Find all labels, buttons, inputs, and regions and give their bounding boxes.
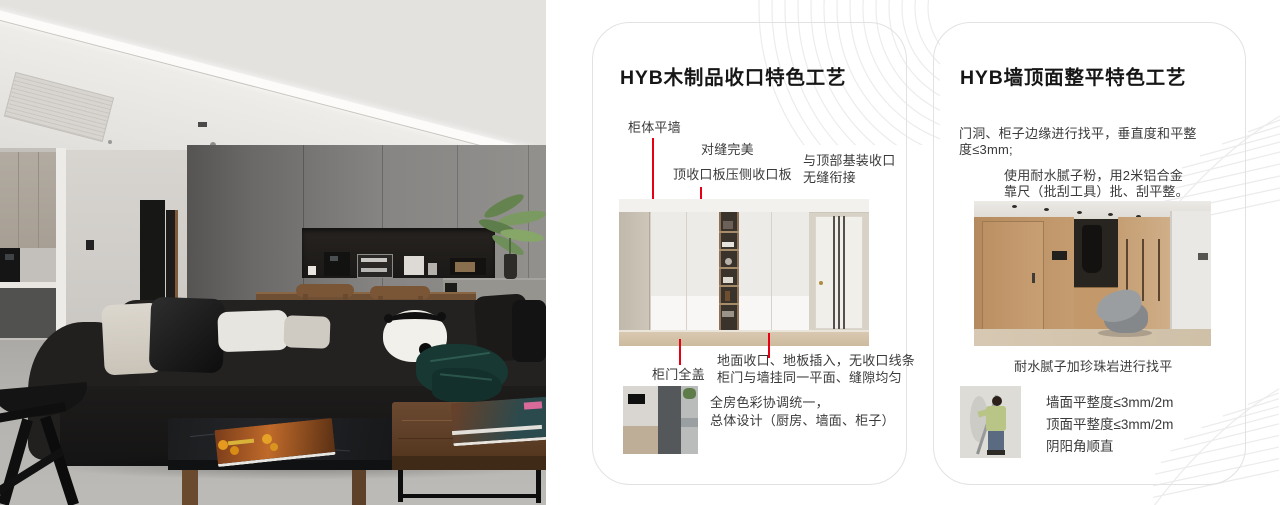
rack-cups [361,258,387,262]
walnut-table-stretcher [398,494,541,498]
wall-switch [1052,251,1067,260]
render-floor [619,330,869,346]
entry-hall-image [974,201,1211,346]
page: HYB木制品收口特色工艺 柜体平墙 对缝完美 顶收口板压侧收口板 与顶部基装收口… [0,0,1280,505]
walnut-table-leg [536,470,541,503]
orange-fruit [270,443,278,451]
shelf-item [723,277,733,283]
kitchen-cabinet-seam [38,152,39,248]
note-color-harmony: 全房色彩协调统一， [710,395,829,411]
niche-grinder [428,263,437,275]
dark-pillow [512,300,546,362]
coffee-machine-display [330,256,338,261]
thumb-gray-cabinet [658,386,681,454]
rack-cups [361,268,387,272]
render-left-wall [619,212,650,346]
hall-spotlight [1077,211,1082,214]
shelf-item [722,311,734,317]
render-ceiling [619,199,869,213]
interior-thumbnail [623,386,698,454]
putty-paragraph-line1: 使用耐水腻子粉，用2米铝合金 [1004,168,1183,184]
wardrobe-render-image [619,199,869,346]
shelf-item [725,291,730,301]
walnut-table-edge [392,456,546,470]
thumb-floor [623,426,658,454]
spec-corner-straightness: 阴阳角顺直 [1046,435,1114,455]
thumb-tv [628,394,645,404]
callout-ceiling-joint-line1: 与顶部基装收口 [803,153,895,169]
kitchen-cabinet-seam [18,152,19,248]
wardrobe-door-seam [686,212,687,330]
door-stripe [833,216,835,329]
light-switch [86,240,94,250]
kitchen-upper-cabinets [0,152,58,248]
door-stripe [838,216,840,329]
wardrobe-slit-handle [1158,239,1160,301]
note-overall-design: 总体设计（厨房、墙面、柜子） [710,413,895,429]
putty-paragraph-line2: 靠尺（批刮工具）批、刮平整。 [1004,184,1189,200]
kitchen-lower-cabinets [0,288,58,338]
shelf-board [719,249,739,251]
living-room-photo [0,0,546,505]
image-caption-putty-perlite: 耐水腻子加珍珠岩进行找平 [1014,359,1172,375]
orange-fruit [218,440,228,450]
orange-fruit [230,446,239,455]
callout-floor-joint-line1: 地面收口、地板插入，无收口线条 [717,353,915,369]
thumb-counter [681,418,698,427]
shelf-board [719,267,739,269]
card2-title: HYB墙顶面整平特色工艺 [960,61,1186,90]
callout-perfect-seam: 对缝完美 [701,142,754,158]
callout-top-strip: 顶收口板压侧收口板 [673,167,792,183]
shelf-item [722,242,734,247]
leveling-paragraph-line1: 门洞、柜子边缘进行找平，垂直度和平整 [959,126,1197,142]
worker-head [992,396,1002,406]
spec-wall-flatness: 墙面平整度≤3mm/2m [1046,391,1173,411]
niche-espresso-machine [404,256,424,275]
panda-ear [437,312,446,321]
wardrobe-slit-handle [1142,239,1144,301]
stone-table-edge [168,460,392,470]
worker-pants [988,431,1004,451]
panda-band [387,312,443,334]
ceiling-vent-small [198,122,207,127]
card-wall-leveling: HYB墙顶面整平特色工艺 门洞、柜子边缘进行找平，垂直度和平整 度≤3mm; 使… [933,22,1246,485]
thumb-plant [683,388,696,399]
orange-fruit [262,434,272,444]
sideboard-switch [445,283,457,292]
wall-pillar [56,148,66,340]
callout-floor-joint-line2: 柜门与墙挂同一平面、缝隙均匀 [717,370,902,386]
light-pillow [283,315,330,349]
worker-thumbnail [960,386,1021,458]
magazine-label [524,401,542,409]
plant-vase [504,254,517,279]
door-handle [1032,273,1035,283]
stone-table-leg [182,470,198,505]
black-leather-pillow [149,297,226,374]
niche-mug [308,266,316,275]
white-door-right [1170,211,1211,331]
hanging-coat [1082,225,1102,273]
card-wood-finishing: HYB木制品收口特色工艺 柜体平墙 对缝完美 顶收口板压侧收口板 与顶部基装收口… [592,22,907,485]
hall-spotlight [1012,205,1017,208]
hall-spotlight [1108,213,1113,216]
ceiling-spot [108,140,112,144]
callout-ceiling-joint-line2: 无缝衔接 [803,170,856,186]
white-pillow [217,310,288,352]
leveling-paragraph-line2: 度≤3mm; [959,142,1013,158]
worker-shoes [987,450,1005,455]
stone-table-leg [352,470,366,505]
shelf-item [723,221,733,229]
leader-line [679,339,681,365]
callout-door-full-cover: 柜门全盖 [652,367,705,383]
spec-ceiling-flatness: 顶面平整度≤3mm/2m [1046,413,1173,433]
callout-cabinet-flush-wall: 柜体平墙 [628,120,681,136]
shelf-board [719,231,739,233]
panda-ear [384,314,393,323]
hall-floor [974,329,1211,346]
shelf-board [719,303,739,305]
hall-spotlight [1044,208,1049,211]
card1-title: HYB木制品收口特色工艺 [620,61,846,90]
door-stripe [843,216,845,329]
appliance-screen [5,254,14,260]
door-knob [819,281,823,285]
wardrobe-door-seam [771,212,772,330]
speaker-grille [455,262,475,272]
door-small-sign [1198,253,1208,260]
shelf-board [719,285,739,287]
shelf-item [725,258,732,265]
